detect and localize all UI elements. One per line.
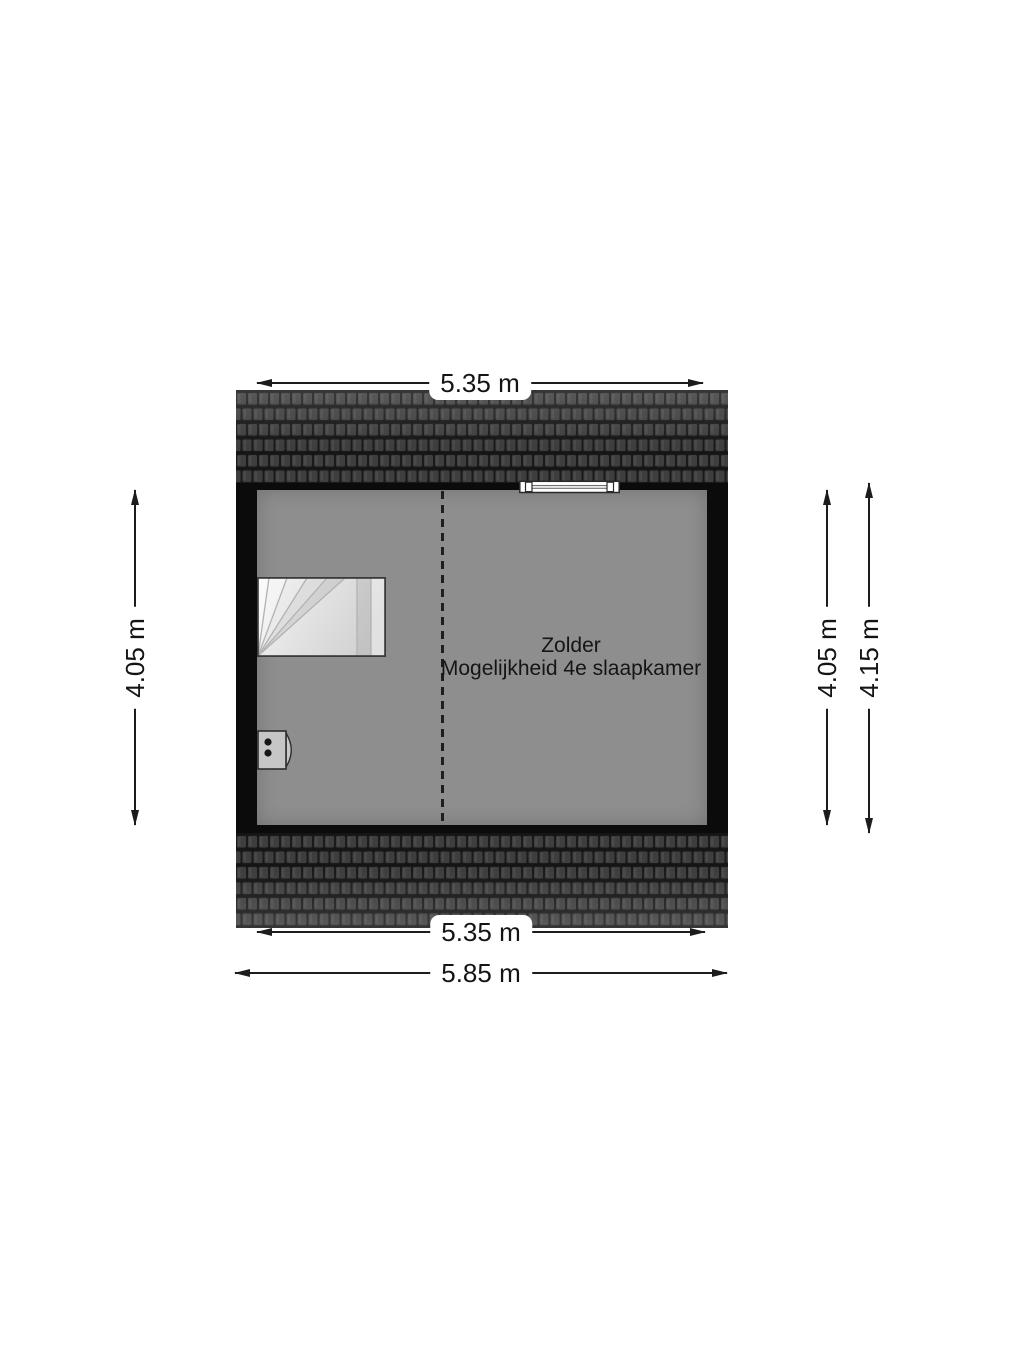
arrow-right-icon (688, 379, 704, 387)
room-label: Zolder Mogelijkheid 4e slaapkamer (421, 634, 721, 680)
roof-tiles-bottom (236, 833, 728, 928)
arrow-down-icon (131, 810, 139, 826)
arrow-left-icon (256, 379, 272, 387)
roof-window-icon (519, 480, 620, 494)
room-name: Zolder (421, 634, 721, 657)
arrow-up-icon (823, 489, 831, 505)
heating-unit-icon (257, 729, 297, 771)
arrow-down-icon (865, 818, 873, 834)
dimension-value: 5.85 m (430, 956, 532, 990)
room-subtitle: Mogelijkheid 4e slaapkamer (421, 657, 721, 680)
dimension-value: 4.05 m (810, 607, 844, 709)
arrow-left-icon (256, 928, 272, 936)
dimension-value: 5.35 m (429, 366, 531, 400)
staircase-icon (257, 577, 386, 657)
floorplan-page: Zolder Mogelijkheid 4e slaapkamer 5.35 m… (0, 0, 1013, 1358)
arrow-up-icon (865, 482, 873, 498)
arrow-left-icon (234, 969, 250, 977)
dimension-value: 5.35 m (430, 915, 532, 949)
dimension-value: 4.15 m (852, 607, 886, 709)
arrow-down-icon (823, 810, 831, 826)
dimension-value: 4.05 m (118, 607, 152, 709)
arrow-right-icon (712, 969, 728, 977)
roof-tiles-top (236, 390, 728, 483)
arrow-up-icon (131, 489, 139, 505)
arrow-right-icon (690, 928, 706, 936)
